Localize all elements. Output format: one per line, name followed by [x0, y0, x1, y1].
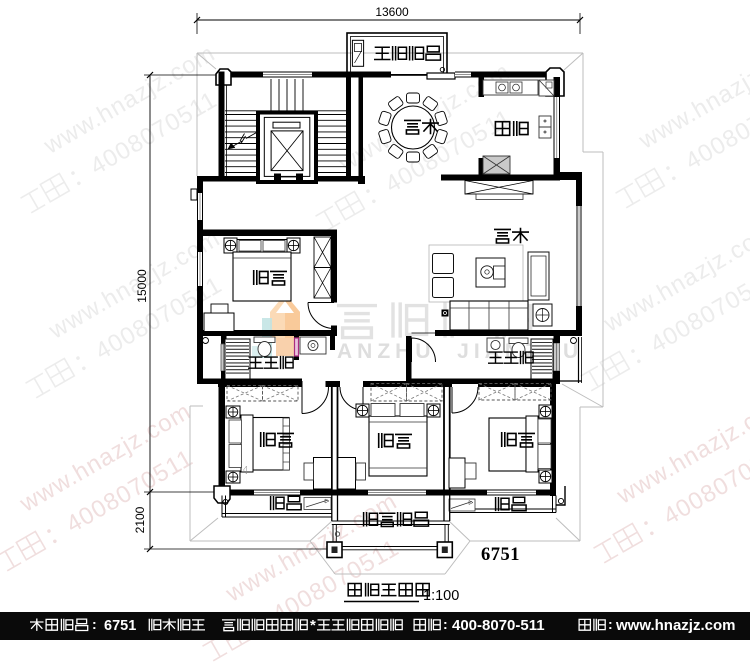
svg-text:6751: 6751 [104, 618, 136, 634]
svg-text::: : [92, 616, 97, 632]
svg-text::: : [443, 616, 448, 632]
svg-text:*: * [310, 617, 316, 634]
svg-text:www.hnazjz.com: www.hnazjz.com [615, 617, 735, 634]
svg-text:400-8070-511: 400-8070-511 [452, 617, 545, 634]
svg-text::: : [608, 616, 613, 632]
